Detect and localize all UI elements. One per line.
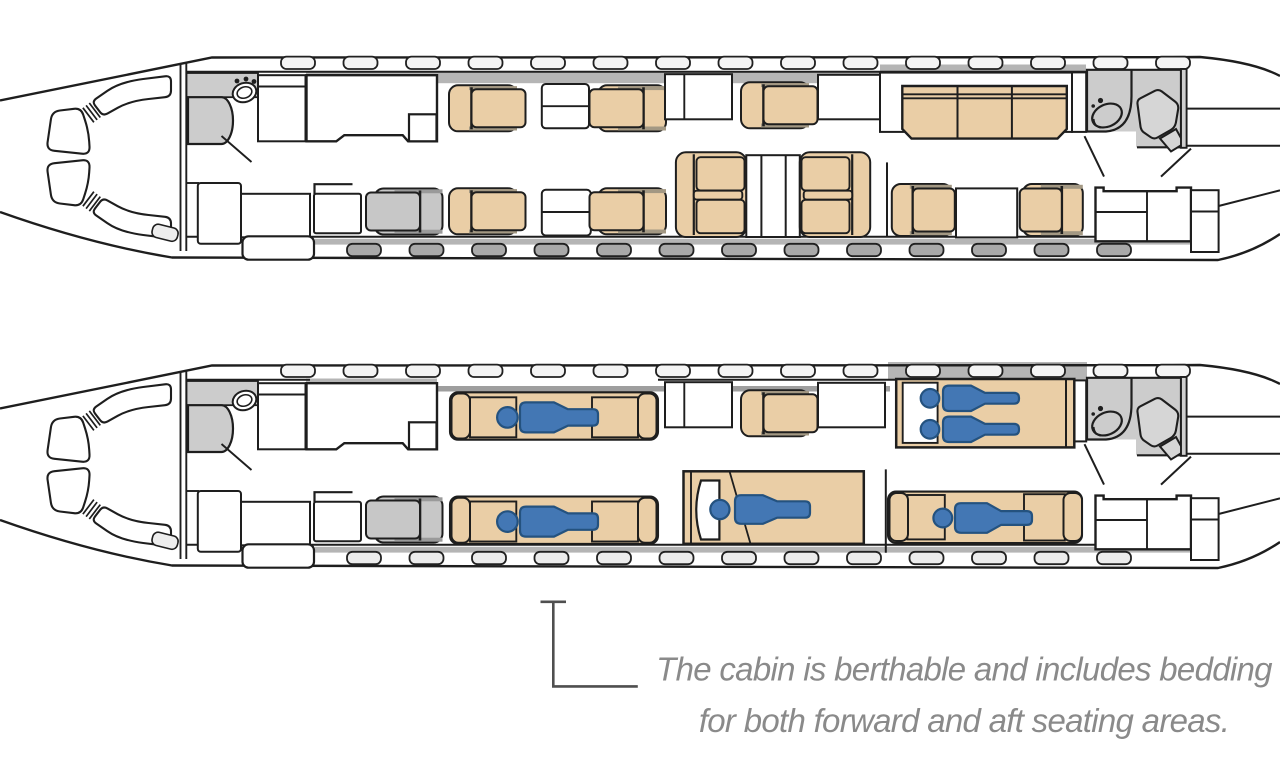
svg-text:The cabin is berthable and inc: The cabin is berthable and includes bedd… (656, 651, 1273, 688)
svg-text:for both forward and aft seati: for both forward and aft seating areas. (699, 702, 1229, 739)
